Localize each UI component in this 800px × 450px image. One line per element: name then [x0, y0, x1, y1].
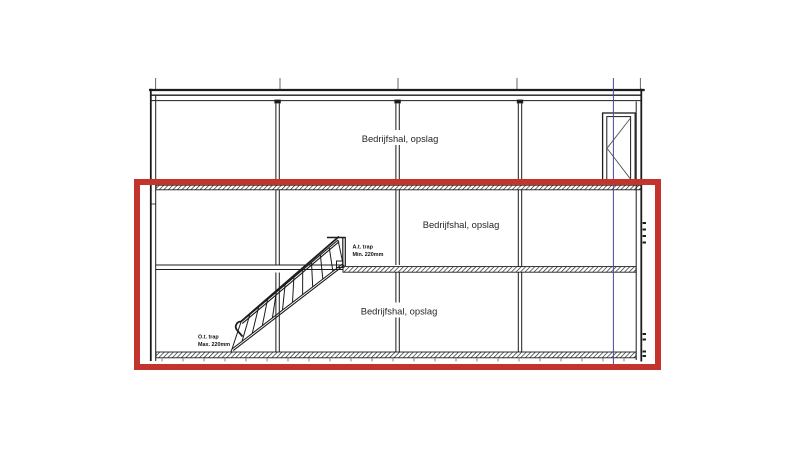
ground-floor-slab [156, 352, 636, 361]
stair-handrail [236, 237, 346, 337]
stair-note-lower-line1: O.t. trap [198, 335, 219, 341]
right-wall [636, 89, 646, 362]
upper-floor-slab [156, 185, 641, 190]
stair-note-upper-line2: Min. 220mm [353, 252, 384, 258]
grid-ticks [156, 78, 641, 89]
floor-label-middle: Bedrijfshal, opslag [423, 219, 500, 230]
stair-note-lower: O.t. trap Max. 220mm [198, 335, 230, 349]
stair-note-upper-line1: A.t. trap [353, 245, 374, 251]
wall-anchor-marks [643, 222, 646, 357]
section-drawing: Bedrijfshal, opslag Bedrijfshal, opslag … [0, 0, 800, 450]
stair [231, 237, 346, 353]
floor-labels: Bedrijfshal, opslag Bedrijfshal, opslag … [352, 130, 508, 318]
stair-note-lower-line2: Max. 220mm [198, 342, 230, 348]
mezzanine-floor [156, 265, 636, 272]
floor-label-top: Bedrijfshal, opslag [362, 133, 439, 144]
stair-stringers [232, 240, 344, 351]
stair-note-upper: A.t. trap Min. 220mm [353, 245, 384, 259]
drawing-viewport: Bedrijfshal, opslag Bedrijfshal, opslag … [0, 0, 800, 450]
door [603, 113, 636, 182]
left-wall [151, 89, 156, 361]
roof [149, 90, 645, 101]
stair-rungs [232, 240, 343, 349]
floor-label-bottom: Bedrijfshal, opslag [361, 306, 438, 317]
